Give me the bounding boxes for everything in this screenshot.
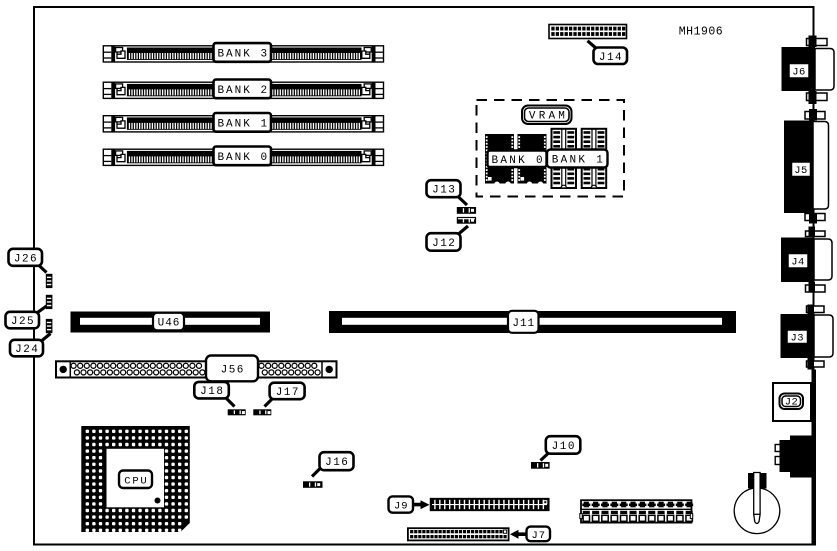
svg-text:J11: J11	[512, 318, 535, 330]
svg-text:U46: U46	[158, 318, 181, 330]
svg-text:BANK 0: BANK 0	[217, 152, 269, 164]
svg-text:J9: J9	[394, 501, 409, 513]
svg-text:VRAM: VRAM	[529, 110, 568, 122]
svg-text:J3: J3	[790, 333, 804, 345]
svg-text:BANK 1: BANK 1	[552, 155, 605, 167]
svg-text:J26: J26	[14, 253, 38, 265]
svg-text:J4: J4	[791, 257, 805, 269]
svg-text:J14: J14	[599, 52, 623, 64]
svg-text:J25: J25	[11, 316, 35, 328]
svg-text:J5: J5	[794, 165, 808, 177]
svg-text:BANK 0: BANK 0	[491, 155, 544, 167]
svg-text:J16: J16	[325, 457, 349, 469]
svg-text:J18: J18	[200, 386, 224, 398]
svg-text:J24: J24	[15, 344, 39, 356]
svg-text:MH1906: MH1906	[679, 26, 723, 39]
svg-text:J10: J10	[552, 441, 576, 453]
svg-text:CPU: CPU	[124, 475, 148, 487]
svg-text:J12: J12	[432, 238, 456, 250]
svg-text:J13: J13	[432, 185, 456, 197]
svg-text:J7: J7	[531, 530, 546, 542]
svg-text:J56: J56	[221, 364, 245, 376]
svg-text:J2: J2	[785, 397, 799, 409]
svg-text:BANK 3: BANK 3	[217, 48, 269, 60]
svg-text:J17: J17	[276, 387, 300, 399]
svg-text:J6: J6	[792, 67, 806, 79]
svg-text:BANK 2: BANK 2	[217, 85, 269, 97]
svg-text:BANK 1: BANK 1	[217, 118, 269, 130]
